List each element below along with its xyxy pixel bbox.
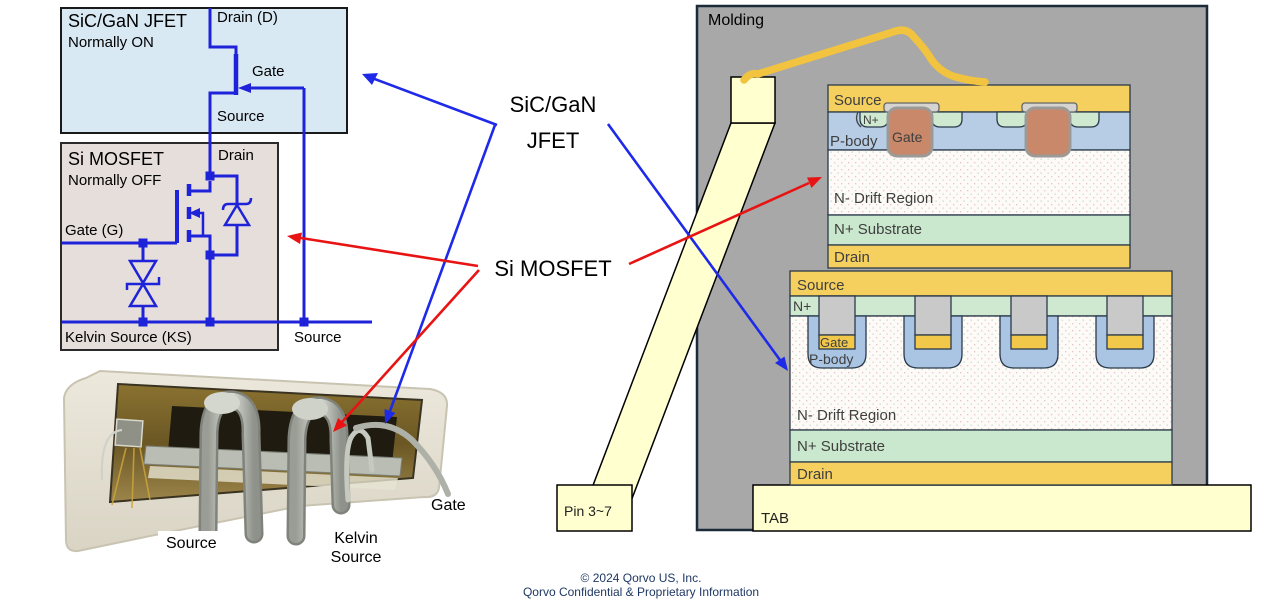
footer: © 2024 Qorvo US, Inc. Qorvo Confidential…: [523, 571, 759, 599]
arrow-blue-to-photo: [390, 125, 495, 411]
arrow-blue-to-jfet-box: [372, 78, 497, 125]
jfet-drain-label: Drain (D): [217, 9, 278, 26]
mosfet-kelvin-label: Kelvin Source (KS): [65, 329, 192, 346]
photo-kelvin-label-line1: Kelvin: [334, 530, 378, 547]
mosfet-gate-label: Gate (G): [65, 222, 123, 239]
top-die-drift-label: N- Drift Region: [834, 190, 933, 207]
footer-copyright: © 2024 Qorvo US, Inc.: [581, 571, 702, 585]
junction-source-node: [206, 251, 215, 260]
bottom-die-source-layer: [790, 271, 1172, 296]
mosfet-box-subtitle: Normally OFF: [68, 172, 161, 189]
jfet-gate-label: Gate: [252, 63, 285, 80]
center-jfet-label-line1: SiC/GaN: [510, 92, 597, 117]
junction-rail-tvs: [139, 318, 148, 327]
slide-canvas: Source Kelvin Source Gate SiC/GaN JFET N…: [0, 0, 1280, 607]
mosfet-box-title: Si MOSFET: [68, 149, 164, 169]
jfet-box-subtitle: Normally ON: [68, 34, 154, 51]
pin-post: [731, 77, 775, 123]
arrow-red-to-mosfet-box-head: [287, 233, 302, 245]
top-die-drain-label: Drain: [834, 249, 870, 266]
tab-region: [753, 485, 1251, 531]
bottom-die-pbody-label: P-body: [809, 351, 853, 367]
photo-bond-blob-2: [292, 398, 328, 420]
junction-rail-source: [206, 318, 215, 327]
junction-rail-external: [300, 318, 309, 327]
top-die-drain-layer: [828, 245, 1130, 268]
package-photo: Source Kelvin Source Gate: [64, 371, 466, 566]
jfet-box-title: SiC/GaN JFET: [68, 11, 187, 31]
pin-box-label: Pin 3~7: [564, 503, 612, 519]
bottom-die-drift-label: N- Drift Region: [797, 407, 896, 424]
junction-drain-node: [206, 172, 215, 181]
center-labels: SiC/GaN JFET Si MOSFET: [494, 92, 611, 281]
top-die-nplus-label: N+: [863, 113, 879, 127]
bottom-die-substrate-label: N+ Substrate: [797, 438, 885, 455]
photo-gate-label: Gate: [431, 497, 466, 514]
external-source-label: Source: [294, 329, 342, 346]
top-die-gate-label: Gate: [892, 129, 923, 145]
center-mosfet-label: Si MOSFET: [494, 256, 611, 281]
top-die-pbody-label: P-body: [830, 133, 878, 150]
bottom-die-gate-label: Gate: [820, 335, 848, 350]
mosfet-schematic-box: Si MOSFET Normally OFF Drain Gate (G) Ke…: [61, 143, 278, 350]
molding-label: Molding: [708, 12, 764, 29]
tab-label: TAB: [761, 510, 789, 527]
bottom-die-nplus-label: N+: [793, 298, 811, 314]
mosfet-drain-label: Drain: [218, 147, 254, 164]
center-jfet-label-line2: JFET: [527, 128, 580, 153]
photo-left-die: [115, 419, 143, 447]
top-die-source-label: Source: [834, 92, 882, 109]
jfet-source-label: Source: [217, 108, 265, 125]
bottom-die-drain-label: Drain: [797, 466, 833, 483]
photo-bond-blob-1: [204, 392, 240, 414]
top-die-substrate-label: N+ Substrate: [834, 221, 922, 238]
diagram-svg: Source Kelvin Source Gate SiC/GaN JFET N…: [0, 0, 1280, 607]
bottom-die-source-label: Source: [797, 277, 845, 294]
photo-kelvin-label-line2: Source: [331, 549, 382, 566]
package-cross-section: Molding TAB Pin 3~7: [557, 6, 1251, 531]
footer-confidential: Qorvo Confidential & Proprietary Informa…: [523, 585, 759, 599]
bottom-die-drain-layer: [790, 462, 1172, 485]
photo-source-label: Source: [166, 535, 217, 552]
junction-gate-node: [139, 239, 148, 248]
